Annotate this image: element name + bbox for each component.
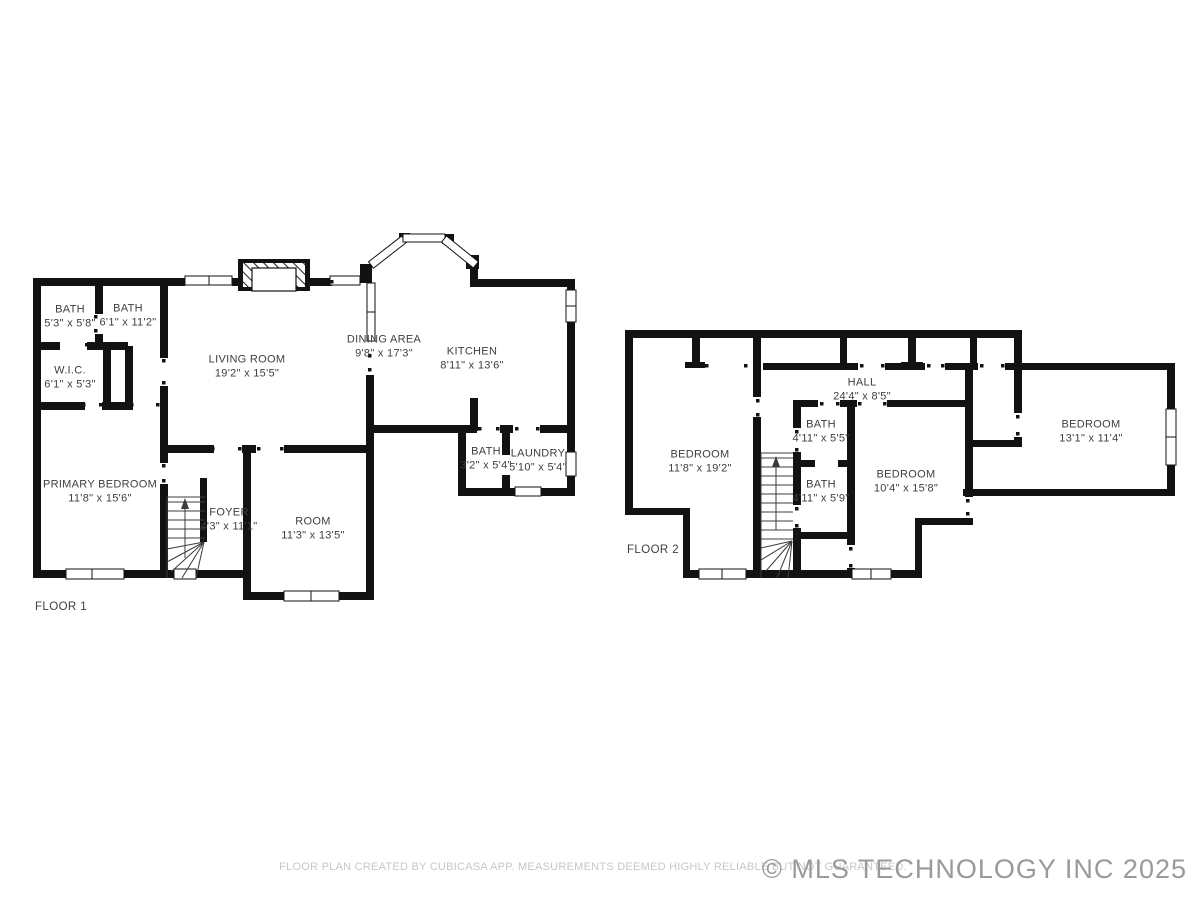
room-label-f1-bath2: BATH 6'1" x 11'2" (100, 303, 157, 330)
room-label-f1-dining-area: DINING AREA 9'8" x 17'3" (347, 334, 421, 361)
floor1-staircase-icon (167, 497, 205, 578)
room-label-f1-primary-bedroom: PRIMARY BEDROOM 11'8" x 15'6" (43, 479, 157, 506)
room-dims: 3'2" x 5'4" (460, 459, 511, 473)
room-dims: 5'3" x 5'8" (44, 317, 95, 331)
room-name: ROOM (281, 516, 344, 530)
room-label-f1-bath3: BATH 3'2" x 5'4" (460, 446, 511, 473)
room-dims: 6'1" x 5'3" (44, 378, 95, 392)
room-name: BATH (100, 303, 157, 317)
floor2-title: FLOOR 2 (627, 544, 679, 556)
floor2-staircase-icon (761, 453, 793, 578)
floor1-title: FLOOR 1 (35, 601, 87, 613)
room-name: BATH (793, 419, 850, 433)
room-name: HALL (833, 377, 891, 391)
room-dims: 8'11" x 13'6" (440, 359, 503, 373)
room-dims: 19'2" x 15'5" (209, 367, 286, 381)
room-name: W.I.C. (44, 365, 95, 379)
room-dims: 13'1" x 11'4" (1059, 432, 1122, 446)
room-label-f2-bedroom-left: BEDROOM 11'8" x 19'2" (668, 449, 731, 476)
floor1-stairs-up-arrow (181, 498, 189, 509)
room-dims: 11'8" x 19'2" (668, 462, 731, 476)
room-name: BEDROOM (874, 469, 938, 483)
room-dims: 11'3" x 13'5" (281, 529, 344, 543)
room-dims: 10'4" x 15'8" (874, 482, 938, 496)
fireplace-icon (238, 259, 310, 291)
room-name: BEDROOM (1059, 419, 1122, 433)
room-label-f2-bath2: BATH 4'11" x 5'9" (793, 479, 850, 506)
room-dims: 5'10" x 5'4" (509, 461, 567, 475)
copyright-watermark: © MLS TECHNOLOGY INC 2025 (762, 854, 1187, 885)
room-name: PRIMARY BEDROOM (43, 479, 157, 493)
room-dims: 4'3" x 11'1" (201, 520, 258, 534)
room-label-f1-laundry: LAUNDRY 5'10" x 5'4" (509, 448, 567, 475)
room-label-f2-bedroom-right: BEDROOM 13'1" x 11'4" (1059, 419, 1122, 446)
room-dims: 4'11" x 5'5" (793, 432, 850, 446)
room-dims: 24'4" x 8'5" (833, 390, 891, 404)
room-label-f1-foyer: FOYER 4'3" x 11'1" (201, 507, 258, 534)
room-label-f1-wic: W.I.C. 6'1" x 5'3" (44, 365, 95, 392)
room-name: BATH (460, 446, 511, 460)
room-name: DINING AREA (347, 334, 421, 348)
room-dims: 11'8" x 15'6" (43, 492, 157, 506)
room-name: BEDROOM (668, 449, 731, 463)
room-label-f1-bath1: BATH 5'3" x 5'8" (44, 304, 95, 331)
room-dims: 4'11" x 5'9" (793, 492, 850, 506)
room-name: LIVING ROOM (209, 354, 286, 368)
floorplan-drawing (0, 0, 1200, 900)
room-name: BATH (793, 479, 850, 493)
room-label-f1-living-room: LIVING ROOM 19'2" x 15'5" (209, 354, 286, 381)
floor1-windows (66, 234, 576, 601)
room-dims: 9'8" x 17'3" (347, 347, 421, 361)
room-name: BATH (44, 304, 95, 318)
room-name: KITCHEN (440, 346, 503, 360)
room-label-f2-bath1: BATH 4'11" x 5'5" (793, 419, 850, 446)
room-label-f1-kitchen: KITCHEN 8'11" x 13'6" (440, 346, 503, 373)
room-dims: 6'1" x 11'2" (100, 316, 157, 330)
room-label-f2-bedroom-middle: BEDROOM 10'4" x 15'8" (874, 469, 938, 496)
room-label-f1-room: ROOM 11'3" x 13'5" (281, 516, 344, 543)
room-name: FOYER (201, 507, 258, 521)
room-name: LAUNDRY (509, 448, 567, 462)
floorplan-image: BATH 5'3" x 5'8" BATH 6'1" x 11'2" W.I.C… (0, 0, 1200, 900)
room-label-f2-hall: HALL 24'4" x 8'5" (833, 377, 891, 404)
